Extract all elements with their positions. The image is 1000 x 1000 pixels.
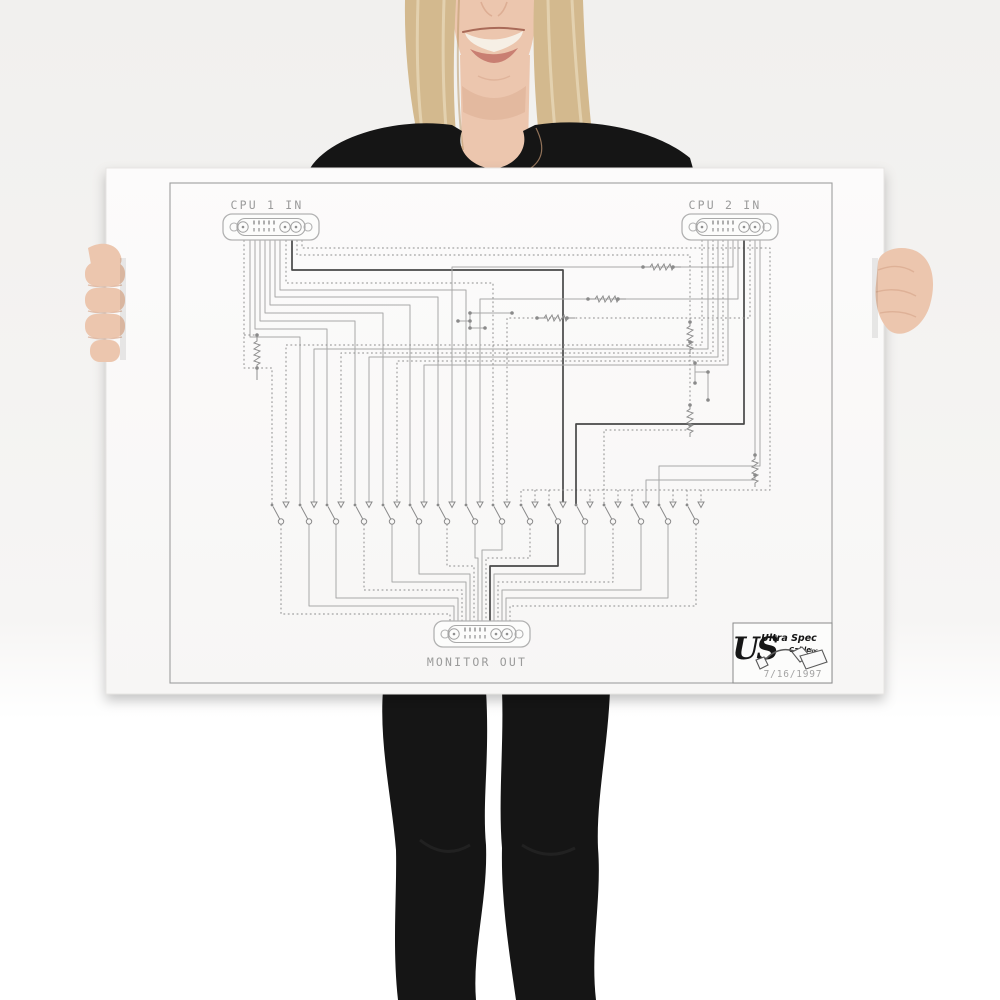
signal-pin xyxy=(273,228,275,232)
coax-pin-center xyxy=(242,226,245,229)
junction-dot xyxy=(565,316,569,320)
switch-pivot xyxy=(409,504,412,507)
signal-pin xyxy=(253,221,255,225)
signal-pin xyxy=(722,228,724,232)
coax-pin-center xyxy=(743,226,746,229)
signal-pin xyxy=(479,635,481,639)
junction-dot xyxy=(706,370,710,374)
junction-dot xyxy=(693,361,697,365)
junction-dot xyxy=(641,265,645,269)
switch-pivot xyxy=(658,504,661,507)
coax-pin-center xyxy=(754,226,757,229)
logo-box: US Ultra Spec Cable inc 7/16/1997 xyxy=(732,623,832,683)
junction-dot xyxy=(535,316,539,320)
signal-pin xyxy=(253,228,255,232)
signal-pin xyxy=(722,221,724,225)
junction-dot xyxy=(753,453,757,457)
switch-pivot xyxy=(631,504,634,507)
signal-pin xyxy=(484,635,486,639)
coax-pin-center xyxy=(453,633,456,636)
right-hand-shadow xyxy=(872,258,878,338)
switch-pivot xyxy=(686,504,689,507)
signal-pin xyxy=(263,221,265,225)
coax-pin-center xyxy=(295,226,298,229)
cpu1-connector xyxy=(223,214,319,240)
signal-pin xyxy=(258,228,260,232)
signal-pin xyxy=(263,228,265,232)
coax-pin-center xyxy=(701,226,704,229)
junction-dot xyxy=(688,320,692,324)
junction-dot xyxy=(456,319,460,323)
poster-paper xyxy=(106,168,884,694)
cpu2-label: CPU 2 IN xyxy=(689,198,762,212)
signal-pin xyxy=(732,221,734,225)
left-finger xyxy=(85,314,125,338)
signal-pin xyxy=(727,228,729,232)
junction-dot xyxy=(753,473,757,477)
signal-pin xyxy=(484,628,486,632)
signal-pin xyxy=(479,628,481,632)
signal-pin xyxy=(732,228,734,232)
switch-pivot xyxy=(299,504,302,507)
cpu1-label: CPU 1 IN xyxy=(231,198,304,212)
switch-pivot xyxy=(520,504,523,507)
junction-dot xyxy=(255,366,259,370)
switch-pivot xyxy=(465,504,468,507)
coax-pin-center xyxy=(284,226,287,229)
left-hand-shadow xyxy=(120,258,126,360)
junction-dot xyxy=(706,398,710,402)
junction-dot xyxy=(586,297,590,301)
switch-pivot xyxy=(603,504,606,507)
cpu2-connector xyxy=(682,214,778,240)
monitor-label: MONITOR OUT xyxy=(427,655,527,669)
signal-pin xyxy=(464,628,466,632)
junction-dot xyxy=(468,311,472,315)
switch-pivot xyxy=(437,504,440,507)
switch-pivot xyxy=(326,504,329,507)
switch-pivot xyxy=(271,504,274,507)
junction-dot xyxy=(510,311,514,315)
junction-dot xyxy=(688,423,692,427)
left-finger xyxy=(90,340,120,362)
signal-pin xyxy=(712,221,714,225)
signal-pin xyxy=(727,221,729,225)
logo-date: 7/16/1997 xyxy=(764,669,823,680)
signal-pin xyxy=(268,221,270,225)
junction-dot xyxy=(688,403,692,407)
switch-pivot xyxy=(354,504,357,507)
coax-pin-center xyxy=(495,633,498,636)
switch-pivot xyxy=(382,504,385,507)
left-finger xyxy=(85,288,125,312)
signal-pin xyxy=(469,635,471,639)
signal-pin xyxy=(464,635,466,639)
signal-pin xyxy=(717,228,719,232)
left-finger xyxy=(85,262,125,286)
junction-dot xyxy=(483,326,487,330)
photo-scene: CPU 1 IN CPU 2 IN MONITOR OUT US Ultra S… xyxy=(0,0,1000,1000)
junction-dot xyxy=(255,333,259,337)
coax-pin-center xyxy=(506,633,509,636)
switch-pivot xyxy=(548,504,551,507)
signal-pin xyxy=(258,221,260,225)
monitor-connector xyxy=(434,621,530,647)
signal-pin xyxy=(469,628,471,632)
logo-brand-text: Ultra Spec xyxy=(761,633,817,644)
junction-dot xyxy=(616,297,620,301)
signal-pin xyxy=(474,628,476,632)
junction-dot xyxy=(671,265,675,269)
junction-dot xyxy=(688,340,692,344)
switch-pivot xyxy=(492,504,495,507)
signal-pin xyxy=(717,221,719,225)
signal-pin xyxy=(273,221,275,225)
junction-dot xyxy=(468,319,472,323)
switch-pivot xyxy=(575,504,578,507)
junction-dot xyxy=(468,326,472,330)
signal-pin xyxy=(268,228,270,232)
poster: CPU 1 IN CPU 2 IN MONITOR OUT US Ultra S… xyxy=(106,168,884,694)
junction-dot xyxy=(693,381,697,385)
scene-svg: CPU 1 IN CPU 2 IN MONITOR OUT US Ultra S… xyxy=(0,0,1000,1000)
left-leg xyxy=(382,690,487,1000)
signal-pin xyxy=(474,635,476,639)
right-leg xyxy=(501,690,610,1000)
signal-pin xyxy=(712,228,714,232)
